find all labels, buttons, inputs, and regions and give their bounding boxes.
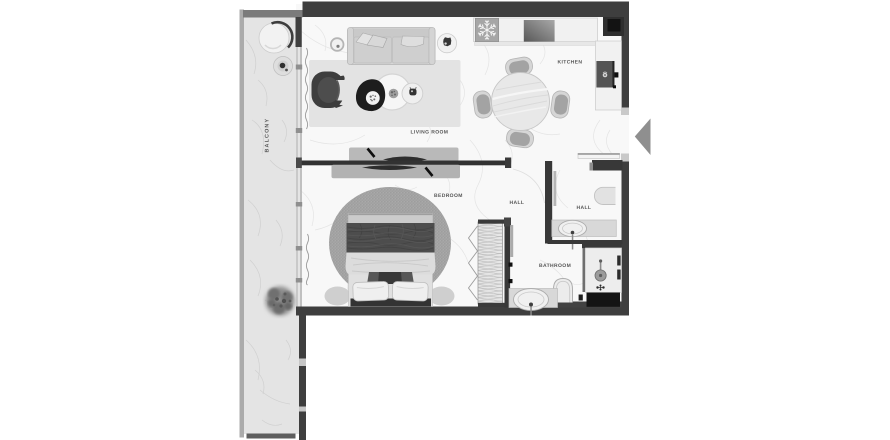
svg-text:LIVING ROOM: LIVING ROOM <box>411 130 449 136</box>
svg-text:HALL: HALL <box>577 205 592 211</box>
svg-text:BEDROOM: BEDROOM <box>434 193 463 199</box>
svg-text:KITCHEN: KITCHEN <box>558 60 583 66</box>
svg-text:BATHROOM: BATHROOM <box>539 263 571 269</box>
svg-text:BALCONY: BALCONY <box>265 118 271 153</box>
svg-text:HALL: HALL <box>510 200 525 206</box>
